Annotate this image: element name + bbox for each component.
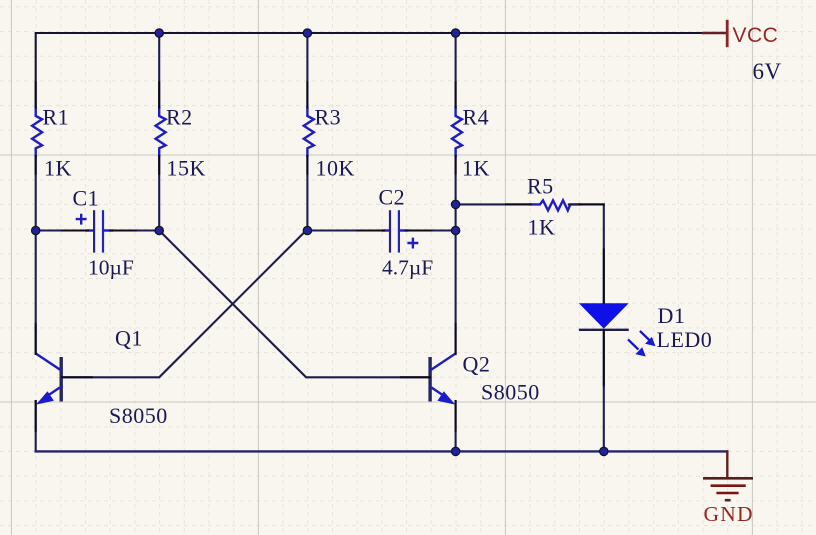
svg-text:R1: R1: [43, 105, 70, 130]
svg-text:D1: D1: [658, 303, 686, 328]
svg-text:C2: C2: [379, 185, 406, 210]
svg-text:R2: R2: [166, 105, 193, 130]
svg-text:Q2: Q2: [463, 352, 491, 377]
svg-text:1K: 1K: [528, 215, 556, 240]
svg-text:S8050: S8050: [109, 403, 168, 428]
svg-text:1K: 1K: [44, 156, 72, 181]
svg-text:R4: R4: [463, 105, 490, 130]
svg-text:10µF: 10µF: [88, 256, 134, 280]
svg-text:GND: GND: [704, 502, 754, 526]
svg-text:R5: R5: [527, 174, 554, 199]
svg-text:1K: 1K: [462, 156, 490, 181]
svg-text:S8050: S8050: [481, 380, 540, 405]
svg-text:Q1: Q1: [115, 326, 143, 351]
svg-text:6V: 6V: [753, 59, 782, 84]
svg-text:R3: R3: [315, 105, 342, 130]
svg-text:4.7µF: 4.7µF: [382, 256, 433, 280]
svg-text:15K: 15K: [167, 156, 206, 181]
svg-text:C1: C1: [73, 186, 100, 211]
svg-text:LED0: LED0: [657, 327, 713, 352]
svg-text:VCC: VCC: [733, 24, 779, 47]
svg-text:10K: 10K: [316, 156, 355, 181]
